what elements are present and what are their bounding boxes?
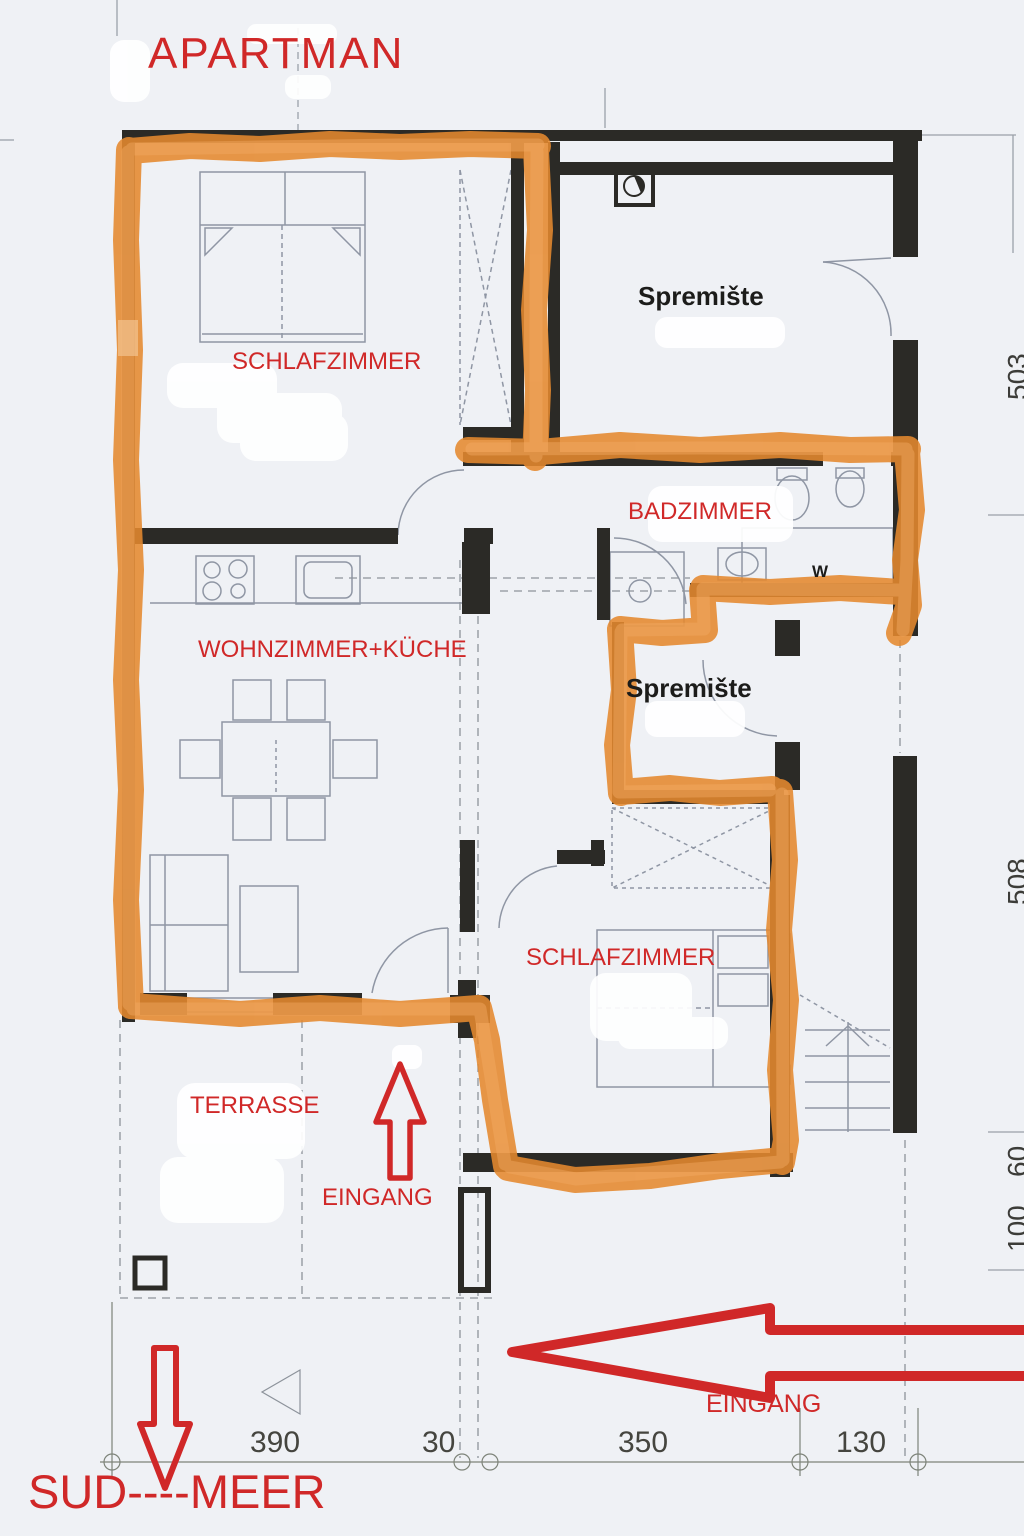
- dim-390: 390: [250, 1428, 300, 1458]
- dim-30: 30: [422, 1428, 455, 1458]
- dim-right-503: 503: [1004, 353, 1024, 400]
- room-label-bathroom: BADZIMMER: [628, 500, 772, 524]
- stairs: [800, 995, 890, 1132]
- floor-plan-drawing: [0, 0, 1024, 1536]
- bed-1: [200, 172, 365, 342]
- washer-label: W: [812, 563, 828, 580]
- entrance-left-arrow: [512, 1308, 1024, 1398]
- room-label-terrace: TERRASSE: [190, 1094, 319, 1118]
- sofa: [150, 855, 298, 991]
- floor-plan-page: APARTMAN SCHLAFZIMMER Spremište BADZIMME…: [0, 0, 1024, 1536]
- entrance-label-terrace: EINGANG: [322, 1186, 433, 1210]
- page-title: APARTMAN: [148, 32, 404, 76]
- entrance-up-arrow: [376, 1064, 424, 1178]
- direction-label: SUD----MEER: [28, 1468, 326, 1515]
- room-label-living-kitchen: WOHNZIMMER+KÜCHE: [198, 638, 467, 662]
- dim-350: 350: [618, 1428, 668, 1458]
- wardrobe-2: [612, 808, 775, 888]
- dim-right-508: 508: [1004, 858, 1024, 905]
- terrace-column: [135, 1258, 165, 1288]
- entrance-label-side: EINGANG: [706, 1392, 821, 1417]
- dining-set: [180, 680, 377, 840]
- dim-130: 130: [836, 1428, 886, 1458]
- dim-right-100: 100: [1004, 1205, 1024, 1252]
- room-label-bedroom-2: SCHLAFZIMMER: [526, 946, 715, 970]
- dim-right-60: 60: [1004, 1146, 1024, 1177]
- wardrobe-1: [460, 170, 511, 425]
- room-label-bedroom-1: SCHLAFZIMMER: [232, 350, 421, 374]
- room-label-storage-1: Spremište: [638, 283, 764, 309]
- room-label-storage-2: Spremište: [626, 675, 752, 701]
- kitchen-counter: [150, 556, 462, 604]
